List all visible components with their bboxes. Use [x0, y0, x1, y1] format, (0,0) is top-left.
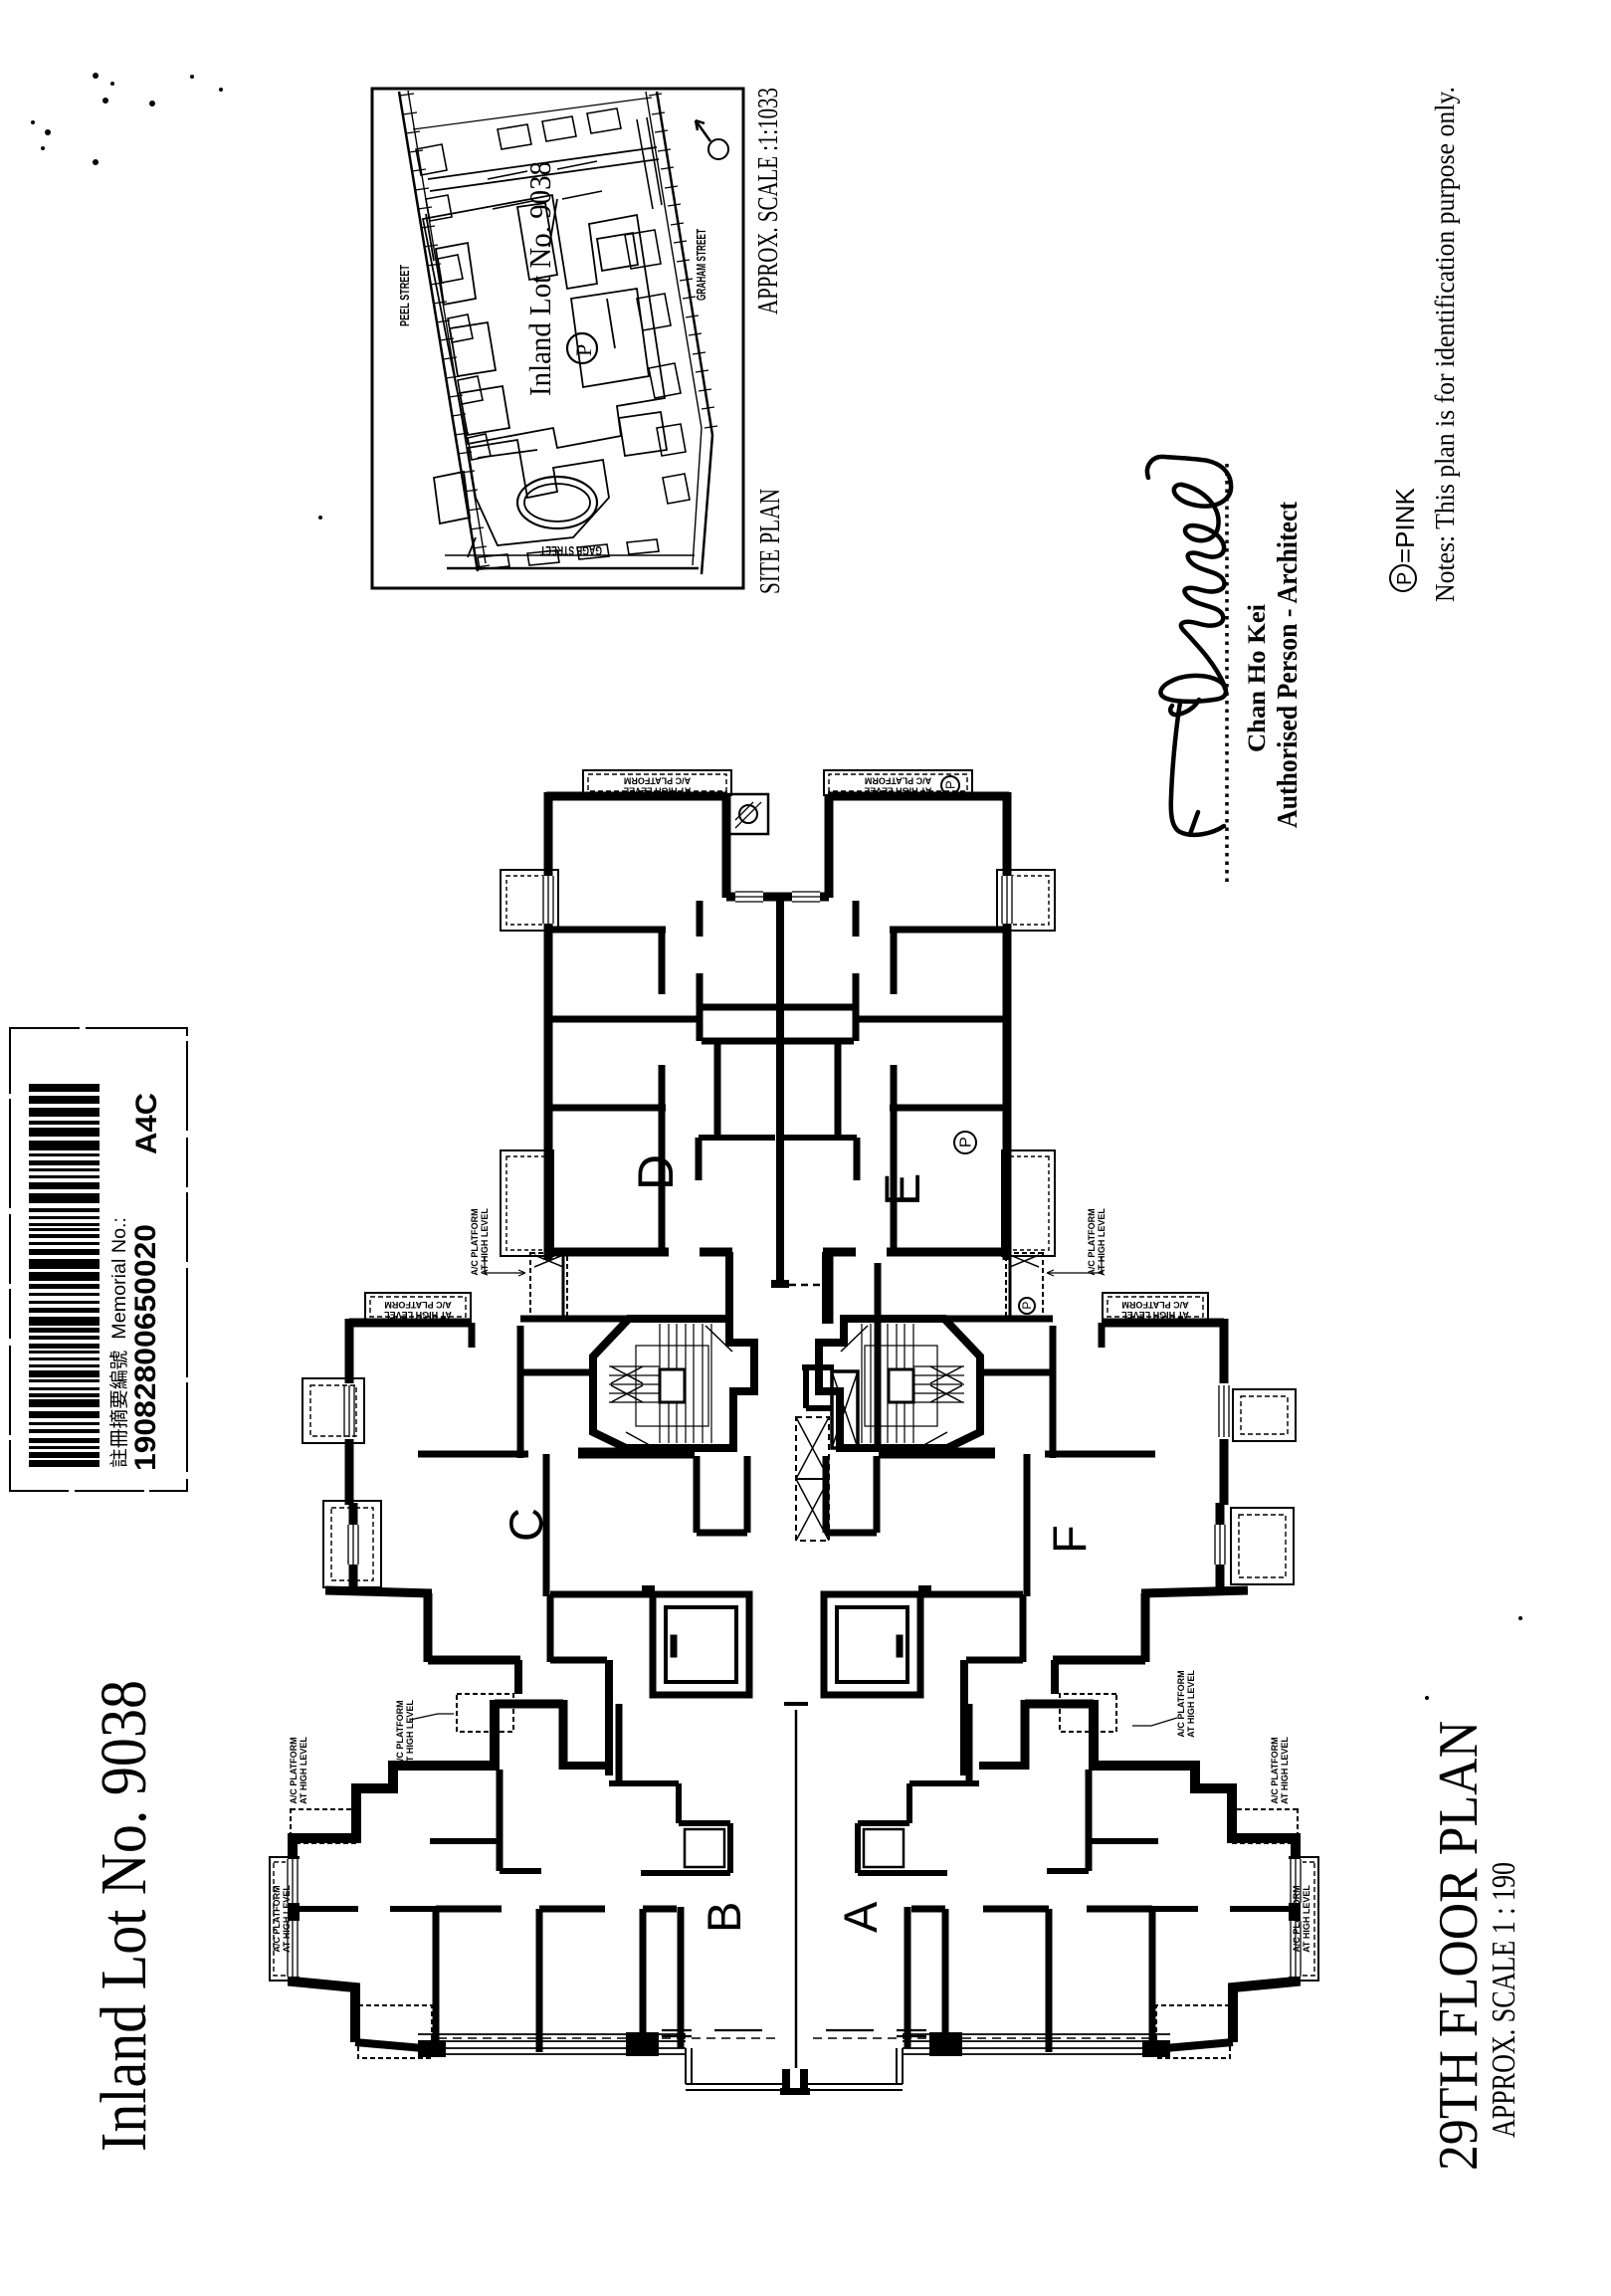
svg-text:A/C PLATFORM: A/C PLATFORM	[395, 1700, 405, 1767]
svg-text:A/C PLATFORM: A/C PLATFORM	[272, 1885, 282, 1952]
svg-text:AT HIGH LEVEL: AT HIGH LEVEL	[864, 786, 931, 796]
svg-text:P: P	[1020, 1302, 1034, 1310]
svg-text:P: P	[1394, 572, 1416, 585]
svg-text:C: C	[500, 1508, 552, 1542]
svg-text:PEEL STREET: PEEL STREET	[397, 265, 412, 326]
svg-text:AT HIGH LEVEL: AT HIGH LEVEL	[623, 786, 691, 796]
svg-text:A/C PLATFORM: A/C PLATFORM	[1270, 1737, 1280, 1803]
svg-text:AT HIGH LEVEL: AT HIGH LEVEL	[299, 1737, 308, 1804]
svg-text:Chan Ho Kei: Chan Ho Kei	[1244, 604, 1271, 752]
svg-text:AT HIGH LEVEL: AT HIGH LEVEL	[384, 1310, 452, 1320]
svg-text:GRAHAM STREET: GRAHAM STREET	[694, 229, 708, 301]
svg-text:P: P	[943, 780, 958, 789]
svg-text:AT HIGH LEVEL: AT HIGH LEVEL	[1186, 1670, 1196, 1738]
svg-text:A/C PLATFORM: A/C PLATFORM	[1176, 1670, 1186, 1737]
svg-text:A/C PLATFORM: A/C PLATFORM	[865, 776, 931, 786]
svg-text:A/C PLATFORM: A/C PLATFORM	[1121, 1300, 1188, 1310]
svg-text:Inland Lot No. 9038: Inland Lot No. 9038	[522, 161, 557, 396]
svg-text:=PINK: =PINK	[1390, 487, 1420, 563]
svg-text:AT HIGH LEVEL: AT HIGH LEVEL	[1280, 1737, 1290, 1804]
svg-text:A/C PLATFORM: A/C PLATFORM	[384, 1300, 451, 1310]
svg-text:註冊摘要編號 Memorial No.:: 註冊摘要編號 Memorial No.:	[108, 1217, 130, 1468]
svg-text:D: D	[628, 1154, 684, 1190]
svg-text:A/C PLATFORM: A/C PLATFORM	[1087, 1208, 1097, 1275]
svg-text:Notes: This plan is for identi: Notes: This plan is for identification p…	[1430, 87, 1460, 602]
svg-text:29TH FLOOR PLAN: 29TH FLOOR PLAN	[1428, 1721, 1490, 2171]
svg-text:E: E	[875, 1173, 930, 1206]
svg-text:Authorised Person - Architect: Authorised Person - Architect	[1272, 502, 1304, 828]
svg-text:A: A	[834, 1901, 887, 1933]
svg-text:AT HIGH LEVEL: AT HIGH LEVEL	[405, 1700, 415, 1768]
svg-text:A/C PLATFORM: A/C PLATFORM	[289, 1737, 299, 1803]
svg-text:F: F	[1043, 1525, 1096, 1554]
svg-text:P: P	[571, 344, 596, 356]
svg-text:A4C: A4C	[130, 1093, 163, 1154]
svg-text:APPROX. SCALE :1:1033: APPROX. SCALE :1:1033	[753, 88, 784, 314]
svg-text:AT HIGH LEVEL: AT HIGH LEVEL	[1121, 1310, 1189, 1320]
svg-text:APPROX. SCALE 1 : 190: APPROX. SCALE 1 : 190	[1486, 1862, 1522, 2138]
svg-text:B: B	[698, 1902, 750, 1933]
svg-text:A/C PLATFORM: A/C PLATFORM	[1292, 1885, 1302, 1952]
svg-text:Inland Lot No. 9038: Inland Lot No. 9038	[88, 1680, 160, 2152]
svg-text:AT HIGH LEVEL: AT HIGH LEVEL	[282, 1885, 292, 1953]
svg-text:A/C PLATFORM: A/C PLATFORM	[624, 776, 691, 786]
svg-text:AT HIGH LEVEL: AT HIGH LEVEL	[1302, 1885, 1311, 1953]
svg-text:A/C PLATFORM: A/C PLATFORM	[470, 1208, 480, 1275]
svg-text:P: P	[958, 1137, 975, 1148]
svg-text:SITE PLAN: SITE PLAN	[755, 489, 786, 594]
svg-text:19082800650020: 19082800650020	[129, 1224, 162, 1471]
